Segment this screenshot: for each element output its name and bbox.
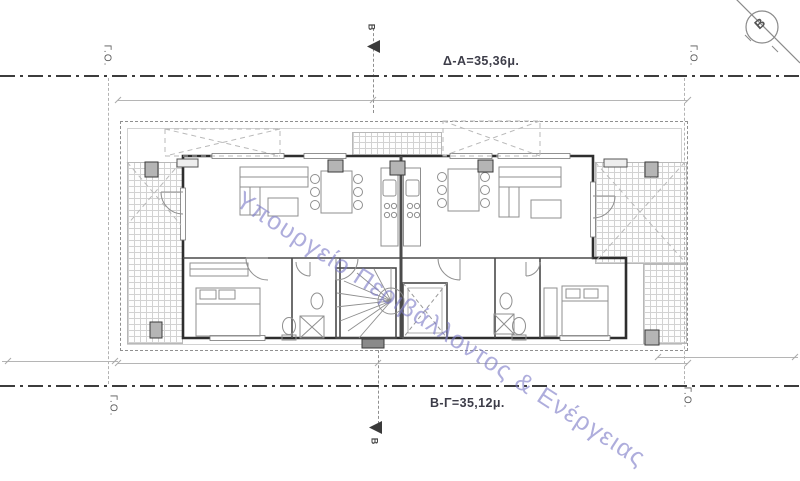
building-line-label-bottom-left: Γ.Ο. xyxy=(107,395,118,417)
bottom-building-line xyxy=(0,385,800,387)
sink-left xyxy=(311,293,323,309)
building-line-label-bottom-right: Γ.Ο. xyxy=(681,387,692,409)
building-line-label-top-right: Γ.Ο. xyxy=(687,45,698,67)
plan-linework xyxy=(0,0,800,481)
wc-left xyxy=(282,318,296,341)
sofa-right xyxy=(499,167,561,217)
coffee-table-right xyxy=(531,200,561,218)
bottom-length-label: Β-Γ=35,12μ. xyxy=(430,396,505,410)
dining-set-left xyxy=(311,171,363,213)
section-b-label-bottom: B xyxy=(369,438,379,445)
shower-right xyxy=(494,314,514,334)
dining-set-right xyxy=(438,169,490,211)
bed-left xyxy=(196,288,260,336)
section-b-label-top: B xyxy=(366,24,376,31)
bed-right xyxy=(562,286,608,336)
top-length-label: Δ-Α=35,36μ. xyxy=(443,54,519,68)
wardrobe-right xyxy=(544,288,557,336)
sink-right xyxy=(500,293,512,309)
building-line-label-top-left: Γ.Ο. xyxy=(101,45,112,67)
shower-left xyxy=(300,316,324,338)
top-building-line xyxy=(0,75,800,77)
section-b-compass xyxy=(728,0,800,63)
floor-plan-sheet: Γ.Ο. Γ.Ο. Γ.Ο. Γ.Ο. Δ-Α=35,36μ. Β-Γ=35,1… xyxy=(0,0,800,481)
